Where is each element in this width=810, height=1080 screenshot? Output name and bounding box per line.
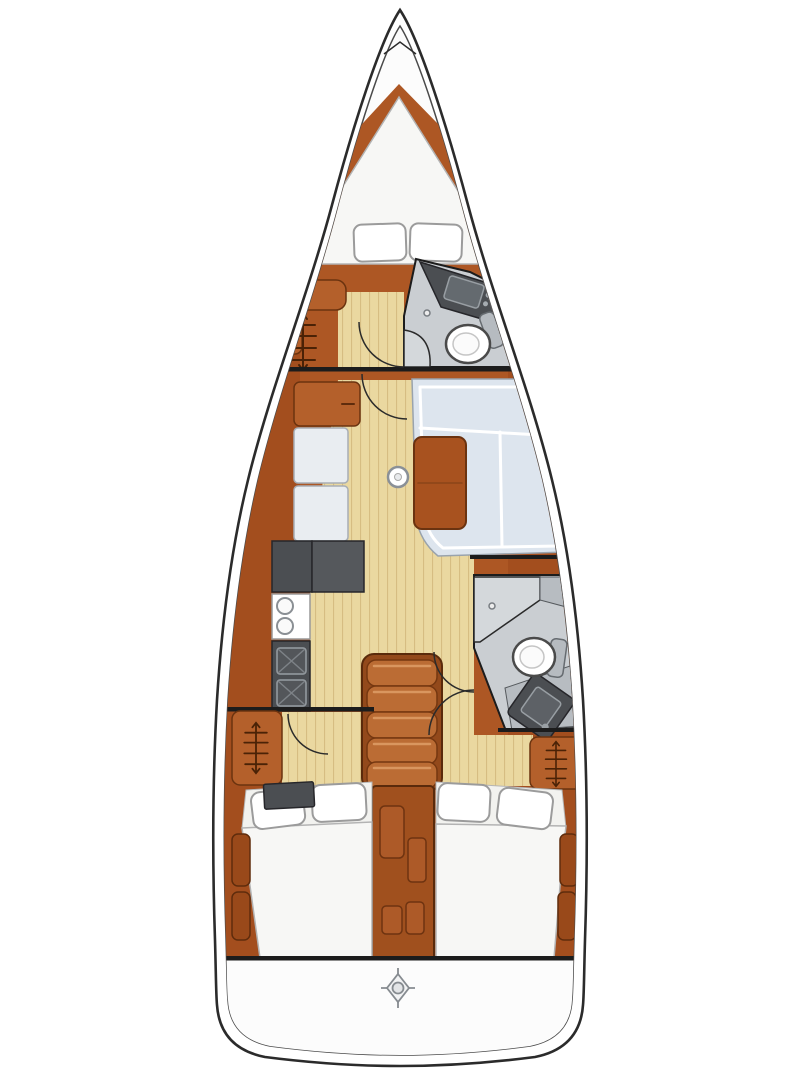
v-berth-pillow-left — [353, 223, 406, 262]
galley-sink-2 — [277, 680, 306, 706]
forward-bulkhead-line — [248, 367, 548, 372]
stern-bulkhead-line — [220, 956, 590, 961]
interior — [200, 84, 610, 1060]
salon-port-sofa-cushion-fwd — [294, 428, 348, 483]
forward-toilet-bowl-inner — [453, 333, 479, 355]
mast-post-center — [395, 474, 402, 481]
galley-counter-right — [312, 541, 364, 592]
floor-plan-svg — [0, 0, 810, 1080]
port-cabin-locker-box — [263, 782, 314, 810]
galley-counter-left — [272, 541, 312, 592]
starboard-aft-bed — [436, 824, 566, 958]
forward-cabin-floor — [338, 292, 404, 367]
port-bed-pillow-inner — [311, 783, 367, 823]
starboard-cabin-entry-floor — [437, 735, 533, 786]
forward-head-door-handle — [424, 310, 430, 316]
starboard-bed-pillow-outer — [496, 787, 554, 830]
aft-head-door-handle — [489, 603, 495, 609]
galley-sink-1 — [277, 648, 306, 674]
companionway-stairs — [367, 660, 437, 788]
salon-port-sofa-cushion-aft — [294, 486, 348, 541]
port-aft-bed — [242, 822, 372, 958]
starboard-bed-pillow-inner — [437, 783, 491, 823]
port-cabin-entry-floor — [282, 712, 370, 786]
stove-burner-2 — [277, 618, 293, 634]
boat-floorplan-page — [0, 0, 810, 1080]
stove-burner-1 — [277, 598, 293, 614]
settee-head-bulkhead-line — [470, 555, 600, 559]
aft-toilet-bowl-inner — [520, 646, 544, 668]
port-aft-hanging-locker — [232, 711, 282, 785]
settee-cushion-line-side — [500, 432, 502, 546]
v-berth-pillow-right — [409, 223, 462, 262]
